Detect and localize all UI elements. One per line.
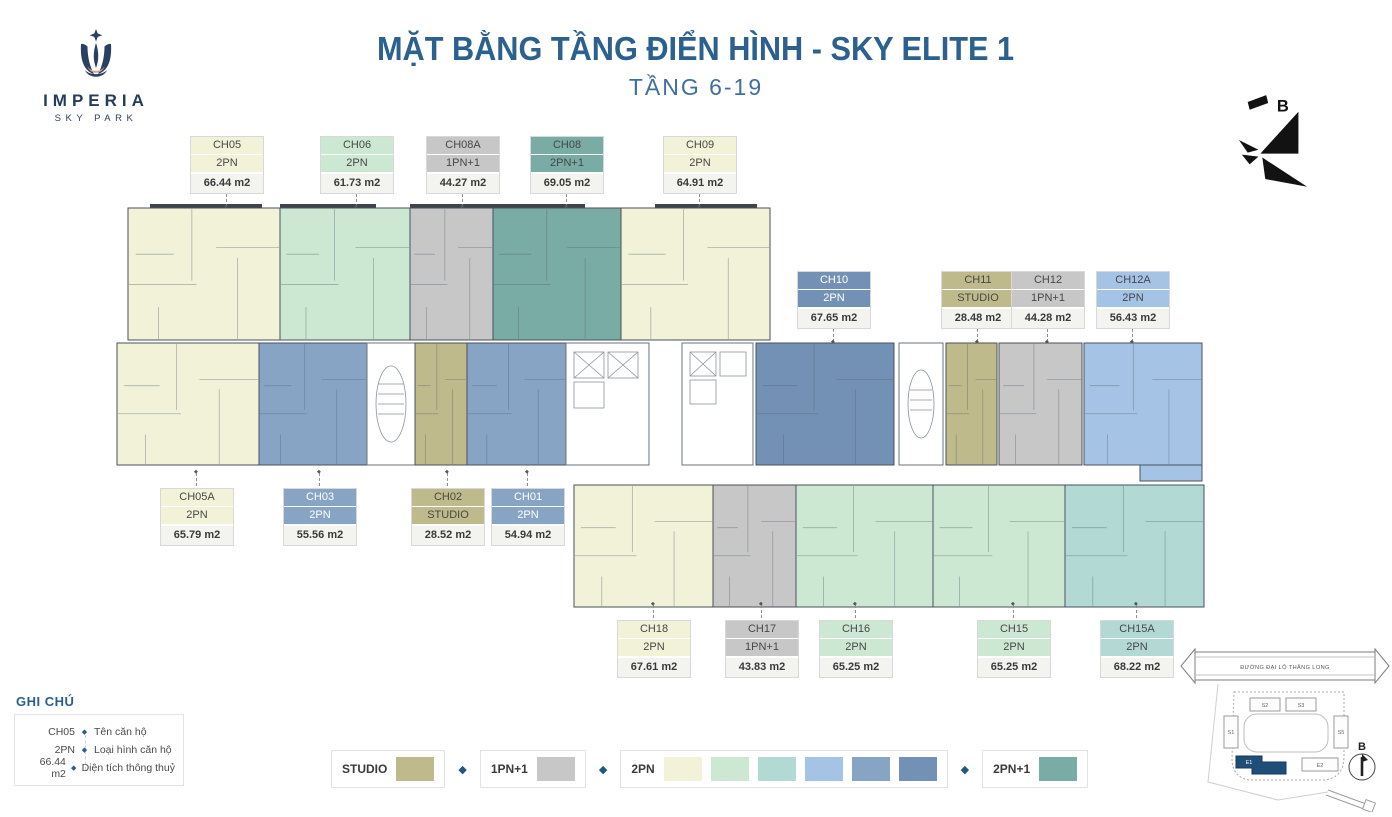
site-building-e2: E2 [1317,763,1324,769]
leader-CH17: ◆ [761,605,762,618]
notes-row-desc: Diện tích thông thuỷ [82,762,175,774]
unit-label-CH17: CH171PN+143.83 m2 [725,620,799,678]
unit-CH11-area: 28.48 m2 [942,307,1014,328]
leader-diamond: ◆ [354,205,358,210]
unit-CH02-code: CH02 [412,489,484,507]
unit-label-CH16: CH162PN65.25 m2 [819,620,893,678]
unit-CH09-code: CH09 [664,137,736,155]
leader-diamond: ◆ [1134,602,1138,607]
plan-unit-CH10 [756,343,894,465]
unit-CH15-area: 65.25 m2 [978,656,1050,677]
type-swatch-aqua [758,757,796,781]
notes-legend-row: CH05◆Tên căn hộ [23,723,175,741]
leader-diamond: ◆ [445,470,449,475]
plan-unit-CH15A [1065,485,1204,607]
plan-unit-CH05 [128,208,280,340]
unit-CH02-area: 28.52 m2 [412,524,484,545]
unit-CH08A-area: 44.27 m2 [427,172,499,193]
plan-unit-CH05A [117,343,259,465]
type-legend-STUDIO: STUDIO [331,750,445,788]
leader-diamond: ◆ [194,470,198,475]
unit-CH16-area: 65.25 m2 [820,656,892,677]
leader-CH11: ◆ [977,329,978,342]
notes-legend-box: CH05◆Tên căn hộ2PN◆Loại hình căn hộ66.44… [14,714,184,786]
unit-label-CH12: CH121PN+144.28 m2 [1011,271,1085,329]
unit-CH03-area: 55.56 m2 [284,524,356,545]
unit-CH09-type: 2PN [664,155,736,172]
unit-CH15A-area: 68.22 m2 [1101,656,1173,677]
leader-diamond: ◆ [460,205,464,210]
unit-label-CH08: CH082PN+169.05 m2 [530,136,604,194]
unit-CH15A-type: 2PN [1101,639,1173,656]
plan-unit-CH09 [621,208,770,340]
leader-CH02: ◆ [447,473,448,486]
plan-unit-CH01 [467,343,566,465]
site-location-map: ĐƯỜNG ĐẠI LỘ THĂNG LONG S2 S3 S1 S5 E2 E… [1178,640,1392,817]
unit-CH17-area: 43.83 m2 [726,656,798,677]
unit-label-CH15: CH152PN65.25 m2 [977,620,1051,678]
unit-CH05-area: 66.44 m2 [191,172,263,193]
leader-diamond: ◆ [697,205,701,210]
plan-elevator-core-1 [566,343,649,465]
notes-row-value: 2PN [23,744,75,756]
unit-CH06-code: CH06 [321,137,393,155]
unit-CH05-code: CH05 [191,137,263,155]
unit-CH10-code: CH10 [798,272,870,290]
leader-CH10: ◆ [833,329,834,342]
page-title: MẶT BẰNG TẦNG ĐIỂN HÌNH - SKY ELITE 1 [0,30,1392,68]
leader-diamond: ◆ [1130,340,1134,345]
plan-unit-CH02 [415,343,467,465]
notes-row-desc: Tên căn hộ [94,726,175,738]
unit-CH08-type: 2PN+1 [531,155,603,172]
unit-label-CH01: CH012PN54.94 m2 [491,488,565,546]
site-compass-label: B [1358,741,1366,753]
unit-CH15-code: CH15 [978,621,1050,639]
notes-row-diamond-icon: ◆ [75,746,94,754]
notes-legend-row: 66.44 m2◆Diện tích thông thuỷ [23,759,175,777]
type-legend: STUDIO◆1PN+1◆2PN◆2PN+1 [331,750,1088,788]
unit-CH12-area: 44.28 m2 [1012,307,1084,328]
unit-label-CH05: CH052PN66.44 m2 [190,136,264,194]
leader-CH03: ◆ [319,473,320,486]
plan-unit-CH12A [1084,343,1202,465]
unit-label-CH10: CH102PN67.65 m2 [797,271,871,329]
unit-label-CH05A: CH05A2PN65.79 m2 [160,488,234,546]
unit-CH10-type: 2PN [798,290,870,307]
unit-CH08-area: 69.05 m2 [531,172,603,193]
leader-CH12: ◆ [1047,329,1048,342]
unit-CH15-type: 2PN [978,639,1050,656]
leader-CH05A: ◆ [196,473,197,486]
unit-CH15A-code: CH15A [1101,621,1173,639]
unit-CH12A-code: CH12A [1097,272,1169,290]
type-swatch-slate [852,757,890,781]
type-swatch-khaki [396,757,434,781]
unit-CH05A-type: 2PN [161,507,233,524]
logo-subtitle: SKY PARK [34,113,158,124]
plan-unit-CH18 [574,485,713,607]
type-legend-2PN+1: 2PN+1 [982,750,1088,788]
page-subtitle: TẦNG 6-19 [0,74,1392,101]
unit-CH08A-code: CH08A [427,137,499,155]
notes-legend: GHI CHÚ CH05◆Tên căn hộ2PN◆Loại hình căn… [14,694,184,786]
unit-label-CH11: CH11STUDIO28.48 m2 [941,271,1015,329]
leader-CH15: ◆ [1013,605,1014,618]
unit-CH12A-area: 56.43 m2 [1097,307,1169,328]
unit-CH17-code: CH17 [726,621,798,639]
floor-plan [110,200,1210,625]
type-swatch-teal [1039,757,1077,781]
site-road-label: ĐƯỜNG ĐẠI LỘ THĂNG LONG [1240,664,1330,671]
notes-row-diamond-icon: ◆ [75,728,94,736]
unit-label-CH03: CH032PN55.56 m2 [283,488,357,546]
leader-diamond: ◆ [975,340,979,345]
type-swatch-gray [537,757,575,781]
notes-row-diamond-icon: ◆ [66,764,82,772]
plan-unit-CH08A [410,208,493,340]
leader-CH15A: ◆ [1136,605,1137,618]
unit-CH11-code: CH11 [942,272,1014,290]
leader-diamond: ◆ [1045,340,1049,345]
type-legend-label: STUDIO [342,762,387,776]
floorplan-page: { "logo": {"name": "IMPERIA", "subtitle"… [0,0,1392,812]
plan-unit-CH11 [946,343,997,465]
type-legend-separator-icon: ◆ [458,763,466,776]
unit-CH18-type: 2PN [618,639,690,656]
plan-unit-CH17 [713,485,796,607]
type-legend-label: 1PN+1 [491,762,528,776]
unit-CH18-code: CH18 [618,621,690,639]
unit-CH12-code: CH12 [1012,272,1084,290]
leader-diamond: ◆ [853,602,857,607]
unit-label-CH09: CH092PN64.91 m2 [663,136,737,194]
type-legend-label: 2PN+1 [993,762,1030,776]
unit-CH03-code: CH03 [284,489,356,507]
unit-CH01-code: CH01 [492,489,564,507]
plan-unit-CH15 [933,485,1065,607]
type-legend-2PN: 2PN [620,750,947,788]
leader-diamond: ◆ [317,470,321,475]
unit-CH12-type: 1PN+1 [1012,290,1084,307]
compass-icon: B [1236,90,1314,195]
unit-label-CH02: CH02STUDIO28.52 m2 [411,488,485,546]
leader-CH16: ◆ [855,605,856,618]
type-legend-label: 2PN [631,762,654,776]
unit-CH01-type: 2PN [492,507,564,524]
notes-row-value: CH05 [23,726,75,738]
type-swatch-lightblue [805,757,843,781]
unit-CH05A-code: CH05A [161,489,233,507]
unit-CH09-area: 64.91 m2 [664,172,736,193]
unit-CH18-area: 67.61 m2 [618,656,690,677]
leader-CH08A: ◆ [462,194,463,207]
unit-CH08-code: CH08 [531,137,603,155]
site-building-e1-highlighted: E1 [1246,760,1253,766]
site-building-s2: S2 [1262,703,1269,709]
plan-unit-CH06 [280,208,410,340]
unit-label-CH15A: CH15A2PN68.22 m2 [1100,620,1174,678]
type-swatch-cream [664,757,702,781]
plan-stair-core-2 [899,343,943,465]
unit-CH06-area: 61.73 m2 [321,172,393,193]
leader-CH06: ◆ [356,194,357,207]
unit-CH16-code: CH16 [820,621,892,639]
unit-label-CH08A: CH08A1PN+144.27 m2 [426,136,500,194]
compass-label: B [1277,97,1289,116]
unit-label-CH18: CH182PN67.61 m2 [617,620,691,678]
leader-CH09: ◆ [699,194,700,207]
leader-diamond: ◆ [525,470,529,475]
plan-unit-CH08 [493,208,621,340]
leader-CH01: ◆ [527,473,528,486]
leader-diamond: ◆ [224,205,228,210]
unit-CH12A-type: 2PN [1097,290,1169,307]
unit-CH05A-area: 65.79 m2 [161,524,233,545]
unit-CH06-type: 2PN [321,155,393,172]
leader-CH18: ◆ [653,605,654,618]
plan-unit-CH16 [796,485,933,607]
unit-CH02-type: STUDIO [412,507,484,524]
unit-CH17-type: 1PN+1 [726,639,798,656]
unit-CH16-type: 2PN [820,639,892,656]
unit-CH08A-type: 1PN+1 [427,155,499,172]
plan-unit-CH03 [259,343,367,465]
leader-CH12A: ◆ [1132,329,1133,342]
notes-row-value: 66.44 m2 [23,756,66,780]
type-legend-1PN+1: 1PN+1 [480,750,586,788]
notes-legend-title: GHI CHÚ [16,694,184,709]
type-legend-separator-icon: ◆ [961,763,969,776]
unit-CH10-area: 67.65 m2 [798,307,870,328]
unit-CH05-type: 2PN [191,155,263,172]
type-legend-separator-icon: ◆ [599,763,607,776]
leader-diamond: ◆ [759,602,763,607]
plan-unit-CH12 [999,343,1082,465]
notes-row-desc: Loại hình căn hộ [94,744,175,756]
leader-diamond: ◆ [651,602,655,607]
leader-CH08: ◆ [566,194,567,207]
leader-CH05: ◆ [226,194,227,207]
site-building-s1: S1 [1228,730,1235,736]
leader-diamond: ◆ [564,205,568,210]
unit-label-CH06: CH062PN61.73 m2 [320,136,394,194]
site-building-s5: S5 [1338,730,1345,736]
unit-label-CH12A: CH12A2PN56.43 m2 [1096,271,1170,329]
leader-diamond: ◆ [831,340,835,345]
type-swatch-mint [711,757,749,781]
unit-CH01-area: 54.94 m2 [492,524,564,545]
unit-CH11-type: STUDIO [942,290,1014,307]
unit-CH03-type: 2PN [284,507,356,524]
type-swatch-darkslate [899,757,937,781]
plan-unit-CH12A-ext [1140,465,1202,481]
leader-diamond: ◆ [1011,602,1015,607]
site-building-s3: S3 [1298,703,1305,709]
